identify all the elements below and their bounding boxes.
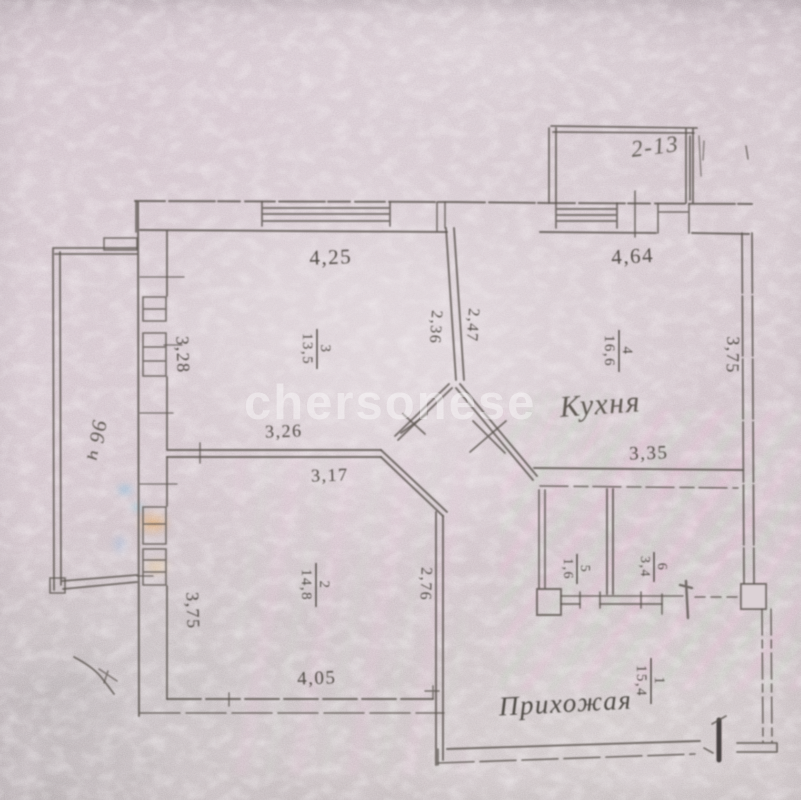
svg-text:Прихожая: Прихожая	[497, 685, 633, 722]
svg-text:3,28: 3,28	[172, 336, 193, 374]
svg-text:4,05: 4,05	[297, 667, 337, 689]
svg-text:chersonese: chersonese	[244, 376, 536, 430]
svg-text:3,17: 3,17	[311, 464, 349, 485]
svg-text:2,76: 2,76	[416, 567, 434, 602]
svg-text:3: 3	[317, 345, 333, 354]
svg-text:5: 5	[577, 565, 592, 574]
svg-text:3,35: 3,35	[629, 442, 669, 464]
svg-text:4,64: 4,64	[611, 243, 655, 269]
svg-text:96 ч: 96 ч	[82, 418, 112, 464]
svg-text:15,4: 15,4	[633, 665, 649, 697]
svg-text:6: 6	[654, 563, 669, 572]
svg-text:16,6: 16,6	[601, 335, 617, 367]
svg-text:2,36: 2,36	[426, 310, 445, 345]
svg-text:2: 2	[316, 581, 332, 590]
svg-text:1: 1	[651, 677, 667, 686]
svg-text:4,25: 4,25	[309, 244, 353, 269]
svg-text:13,5: 13,5	[299, 333, 315, 365]
svg-text:14,8: 14,8	[298, 569, 314, 601]
svg-text:3,75: 3,75	[723, 336, 744, 374]
svg-text:4: 4	[619, 347, 635, 356]
svg-text:2,47: 2,47	[463, 308, 482, 343]
svg-text:3,75: 3,75	[182, 592, 203, 630]
svg-text:3,4: 3,4	[637, 556, 652, 578]
svg-text:1,6: 1,6	[560, 558, 575, 580]
svg-text:Кухня: Кухня	[558, 385, 642, 424]
svg-text:2-13: 2-13	[630, 131, 681, 162]
